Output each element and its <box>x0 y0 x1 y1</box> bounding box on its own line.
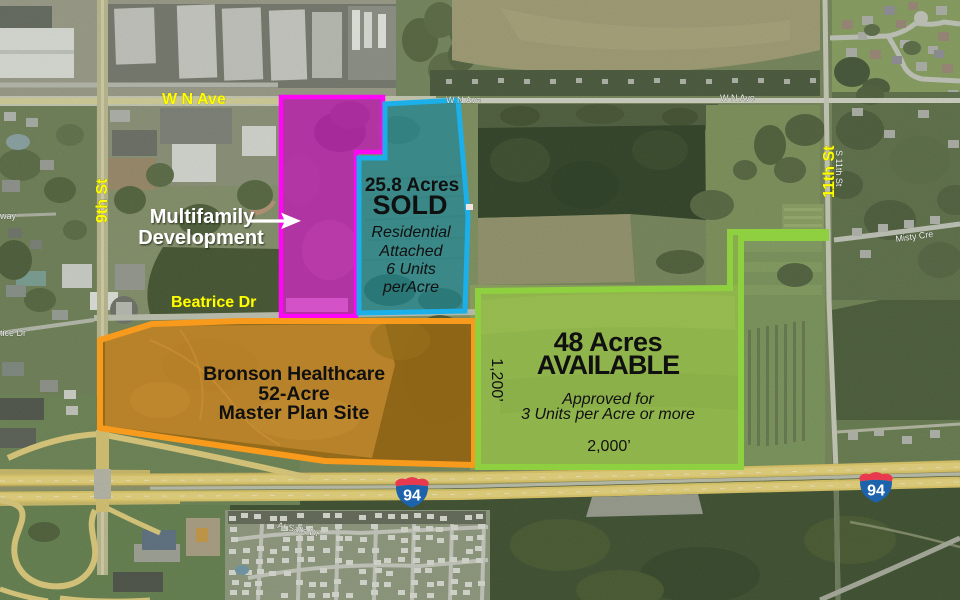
svg-text:way: way <box>0 211 17 221</box>
svg-text:Residential: Residential <box>371 224 451 241</box>
svg-text:9th St: 9th St <box>94 178 111 223</box>
svg-text:2,000’: 2,000’ <box>587 438 631 455</box>
svg-text:W N Ave: W N Ave <box>720 93 755 103</box>
svg-text:Beatrice Dr: Beatrice Dr <box>171 294 256 311</box>
svg-text:SOLD: SOLD <box>372 190 447 220</box>
svg-text:AVAILABLE: AVAILABLE <box>537 350 679 380</box>
svg-text:tice Dr: tice Dr <box>0 328 26 338</box>
svg-text:Multifamily: Multifamily <box>150 206 255 228</box>
svg-text:3 Units per Acre or more: 3 Units per Acre or more <box>521 406 695 423</box>
svg-text:perAcre: perAcre <box>382 279 439 296</box>
svg-text:W N Ave: W N Ave <box>446 95 481 105</box>
svg-text:Bronson Healthcare: Bronson Healthcare <box>203 363 385 385</box>
svg-text:6 Units: 6 Units <box>386 261 436 278</box>
svg-text:Master Plan Site: Master Plan Site <box>219 402 370 424</box>
svg-text:1,200’: 1,200’ <box>488 358 505 402</box>
svg-text:Attached: Attached <box>378 243 443 260</box>
svg-text:94: 94 <box>403 488 421 505</box>
svg-text:Development: Development <box>138 227 264 249</box>
svg-text:S 11th St: S 11th St <box>834 150 844 187</box>
svg-text:94: 94 <box>867 483 885 500</box>
svg-text:W N Ave: W N Ave <box>162 91 226 108</box>
